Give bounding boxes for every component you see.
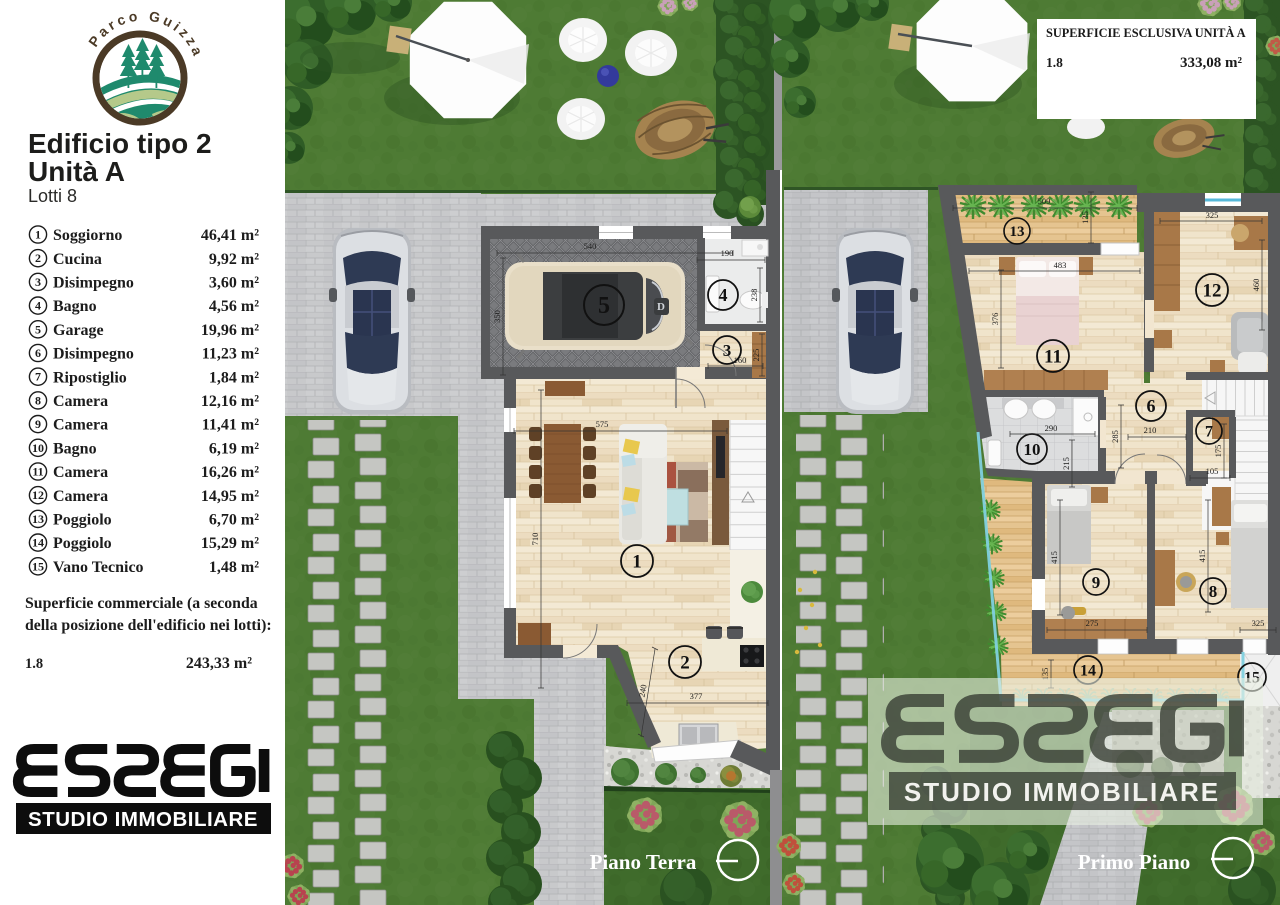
svg-text:13: 13 [32,512,44,526]
svg-text:210: 210 [1144,425,1157,435]
svg-text:9: 9 [35,417,41,431]
svg-text:Camera: Camera [53,464,108,481]
svg-text:6,70 m²: 6,70 m² [209,512,259,529]
svg-text:11: 11 [32,465,43,479]
svg-text:575: 575 [596,419,609,429]
svg-text:Ripostiglio: Ripostiglio [53,369,127,386]
svg-text:105: 105 [1206,466,1219,476]
svg-text:2: 2 [680,652,690,673]
svg-text:710: 710 [530,533,540,546]
svg-text:STUDIO IMMOBILIARE: STUDIO IMMOBILIARE [28,808,258,831]
svg-text:14: 14 [32,536,44,550]
svg-text:46,41 m²: 46,41 m² [201,227,259,244]
svg-text:Camera: Camera [53,488,108,505]
svg-text:460: 460 [1251,279,1261,292]
svg-text:6: 6 [35,346,41,360]
svg-text:Vano Tecnico: Vano Tecnico [53,559,144,576]
svg-text:483: 483 [1054,260,1067,270]
svg-text:Poggiolo: Poggiolo [53,512,112,529]
svg-text:D: D [657,301,665,313]
svg-text:215: 215 [1061,457,1071,470]
svg-text:STUDIO IMMOBILIARE: STUDIO IMMOBILIARE [904,777,1220,807]
svg-text:Garage: Garage [53,322,104,339]
svg-text:11,23 m²: 11,23 m² [202,346,259,363]
svg-text:14,95 m²: 14,95 m² [201,488,259,505]
svg-text:350: 350 [492,310,502,323]
svg-text:SUPERFICIE ESCLUSIVA UNITÀ A: SUPERFICIE ESCLUSIVA UNITÀ A [1046,26,1246,40]
svg-text:275: 275 [1086,618,1099,628]
svg-text:1,48 m²: 1,48 m² [209,559,259,576]
svg-text:4: 4 [719,285,728,305]
svg-text:Camera: Camera [53,417,108,434]
svg-text:1.8: 1.8 [1046,55,1063,70]
svg-text:1,84 m²: 1,84 m² [209,369,259,386]
svg-text:175: 175 [1213,445,1223,458]
svg-text:243,33 m²: 243,33 m² [186,655,252,672]
svg-text:7: 7 [35,370,41,384]
svg-text:13: 13 [1010,224,1025,240]
svg-text:15: 15 [32,559,44,573]
svg-text:14: 14 [1080,662,1096,679]
svg-text:3: 3 [723,341,732,360]
svg-text:225: 225 [751,349,761,362]
svg-text:135: 135 [1080,211,1090,224]
svg-text:Poggiolo: Poggiolo [53,535,112,552]
svg-text:509: 509 [1038,196,1051,206]
svg-text:285: 285 [1110,430,1120,443]
svg-text:190: 190 [721,248,734,258]
svg-text:325: 325 [1206,210,1219,220]
svg-text:415: 415 [1049,551,1059,564]
svg-text:Bagno: Bagno [53,440,97,457]
svg-text:Bagno: Bagno [53,298,97,315]
svg-text:333,08 m²: 333,08 m² [1180,55,1242,71]
svg-text:Primo Piano: Primo Piano [1078,850,1191,874]
svg-text:Lotti 8: Lotti 8 [28,186,77,206]
svg-text:15,29 m²: 15,29 m² [201,535,259,552]
svg-text:Camera: Camera [53,393,108,410]
svg-text:16,26 m²: 16,26 m² [201,464,259,481]
svg-text:10: 10 [1024,440,1041,459]
svg-text:4,56 m²: 4,56 m² [209,298,259,315]
svg-text:290: 290 [1045,423,1058,433]
svg-text:9: 9 [1092,573,1101,592]
svg-text:Piano Terra: Piano Terra [590,850,697,874]
svg-text:238: 238 [749,289,759,302]
svg-text:5: 5 [35,322,41,336]
svg-text:12: 12 [1203,280,1222,301]
svg-text:9,92 m²: 9,92 m² [209,251,259,268]
svg-text:Superficie commerciale (a seco: Superficie commerciale (a seconda [25,595,258,612]
svg-text:7: 7 [1205,423,1213,440]
svg-text:della posizione dell'edificio: della posizione dell'edificio nei lotti)… [25,617,272,634]
svg-text:Disimpegno: Disimpegno [53,275,134,292]
svg-text:2: 2 [35,251,41,265]
svg-text:8: 8 [35,393,41,407]
svg-text:1.8: 1.8 [25,656,43,672]
svg-text:4: 4 [35,299,41,313]
svg-text:11: 11 [1044,346,1062,367]
svg-text:6: 6 [1147,396,1156,416]
svg-text:325: 325 [1252,618,1265,628]
svg-text:3: 3 [35,275,41,289]
svg-text:8: 8 [1209,582,1218,601]
svg-text:377: 377 [690,691,703,701]
svg-text:5: 5 [598,293,610,319]
svg-text:Unità A: Unità A [28,156,125,187]
svg-text:10: 10 [32,441,44,455]
svg-text:Edificio tipo 2: Edificio tipo 2 [28,128,212,159]
svg-text:12,16 m²: 12,16 m² [201,393,259,410]
svg-text:12: 12 [32,488,44,502]
svg-text:6,19 m²: 6,19 m² [209,440,259,457]
svg-text:376: 376 [990,313,1000,326]
svg-text:19,96 m²: 19,96 m² [201,322,259,339]
svg-text:1: 1 [632,551,642,572]
svg-text:3,60 m²: 3,60 m² [209,275,259,292]
svg-text:540: 540 [584,241,597,251]
svg-text:415: 415 [1197,550,1207,563]
svg-text:160: 160 [734,355,747,365]
svg-text:1: 1 [35,228,41,242]
svg-text:Cucina: Cucina [53,251,102,268]
svg-text:Soggiorno: Soggiorno [53,227,122,244]
svg-text:Disimpegno: Disimpegno [53,346,134,363]
svg-text:11,41 m²: 11,41 m² [202,417,259,434]
